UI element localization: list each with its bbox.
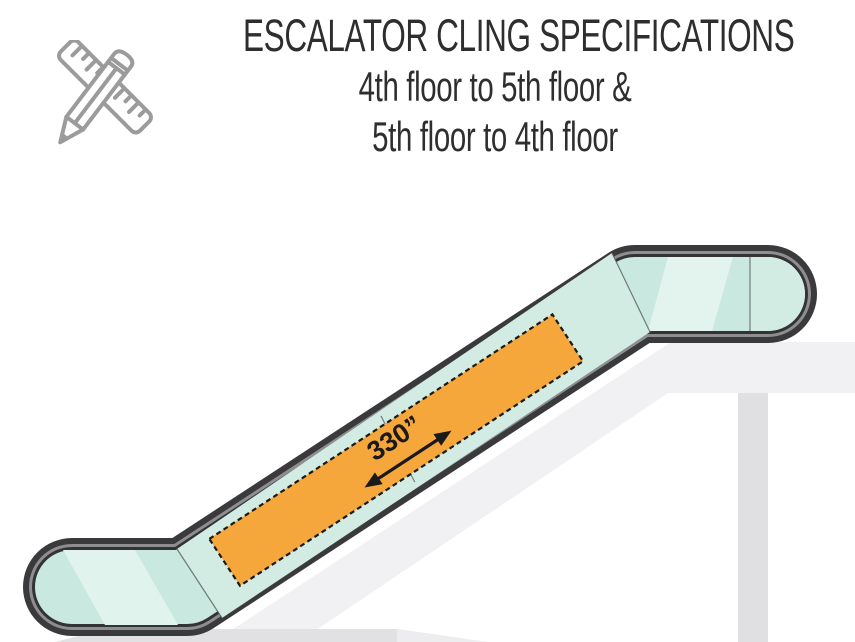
escalator-diagram: 330” (0, 0, 855, 642)
escalator-cling-spec-page: ESCALATOR CLING SPECIFICATIONS 4th floor… (0, 0, 855, 642)
support-column (738, 393, 768, 642)
lower-floor-band-edge (397, 629, 487, 642)
